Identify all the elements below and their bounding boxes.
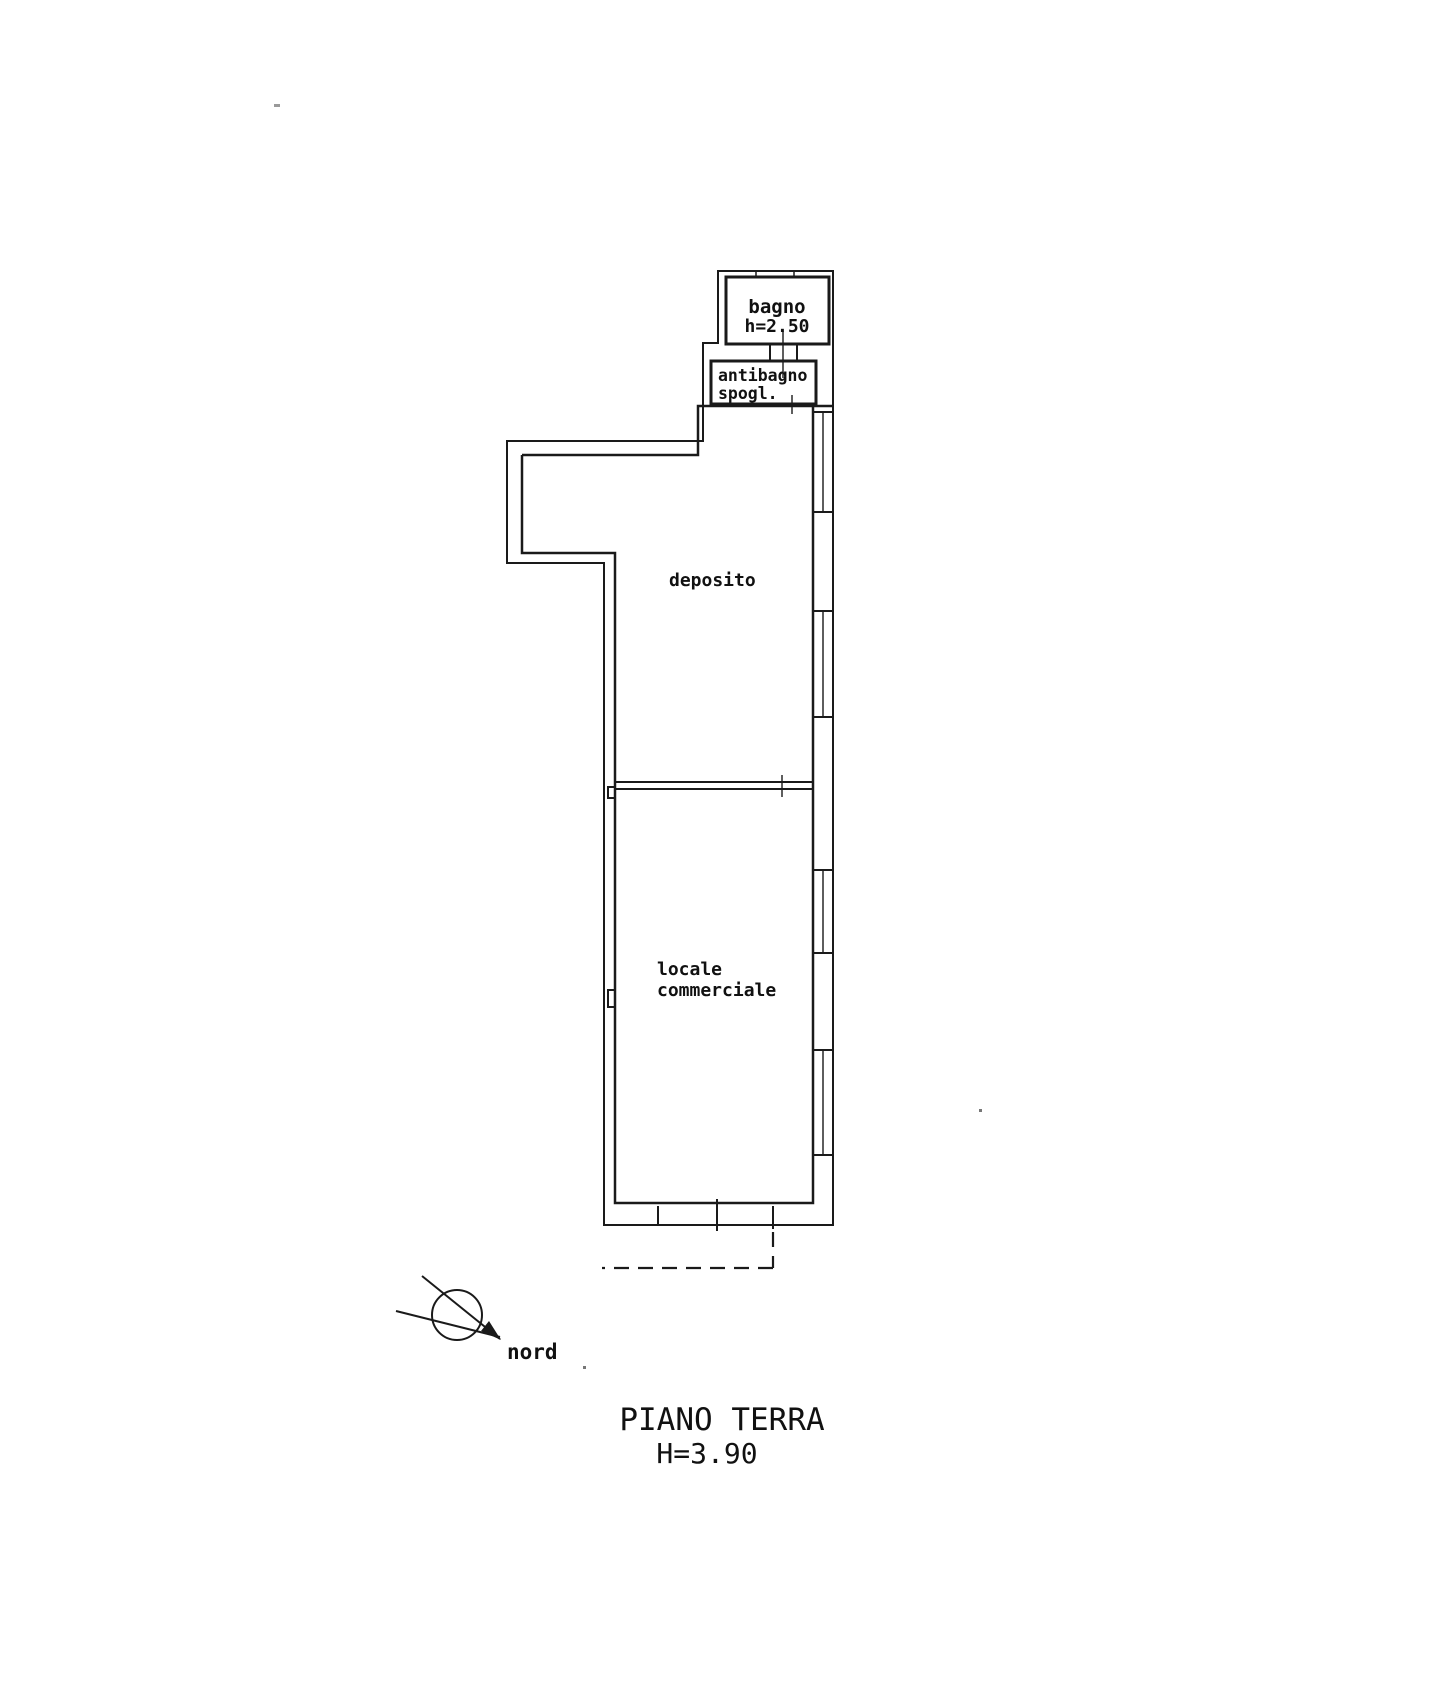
right-wall-windows	[813, 412, 833, 1155]
scan-speck	[979, 1109, 982, 1112]
floor-plan-sheet: bagno h=2.50 antibagno spogl. deposito l…	[0, 0, 1432, 1693]
north-label: nord	[507, 1340, 558, 1364]
sheet-title: PIANO TERRA	[619, 1402, 825, 1438]
locale-label: locale	[657, 959, 722, 980]
north-arrow-circle	[432, 1290, 482, 1340]
partition-wall-lines	[615, 782, 813, 789]
antibagno-label: antibagno	[718, 366, 807, 385]
inner-wall-lines	[522, 406, 833, 1203]
outer-perimeter-wall	[507, 271, 833, 1225]
north-arrow-crossline	[396, 1311, 500, 1337]
deposito-label: deposito	[669, 570, 756, 591]
bagno-label: bagno	[748, 296, 805, 318]
north-arrow	[396, 1276, 501, 1340]
dashed-projection-line	[602, 1232, 773, 1268]
north-arrowhead	[481, 1321, 501, 1340]
scan-specks	[274, 104, 982, 1369]
bagno-height-label: h=2.50	[744, 316, 809, 337]
spogliatoio-label: spogl.	[718, 384, 778, 403]
scan-speck	[274, 104, 280, 107]
floor-plan-drawing: bagno h=2.50 antibagno spogl. deposito l…	[0, 0, 1432, 1693]
window-frame-caps	[813, 412, 833, 1155]
scan-speck	[583, 1366, 586, 1369]
sheet-height-note: H=3.90	[656, 1437, 757, 1470]
partition-wall	[608, 775, 813, 798]
commerciale-label: commerciale	[657, 980, 776, 1001]
